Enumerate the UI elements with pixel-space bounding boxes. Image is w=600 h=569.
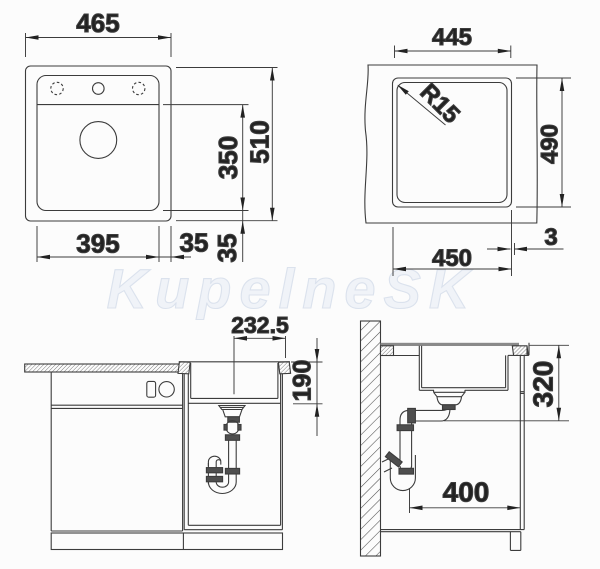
svg-text:490: 490 bbox=[537, 124, 564, 164]
svg-text:35: 35 bbox=[180, 228, 209, 258]
svg-text:350: 350 bbox=[213, 136, 243, 179]
svg-text:232.5: 232.5 bbox=[231, 312, 289, 338]
svg-text:465: 465 bbox=[76, 8, 119, 38]
svg-text:445: 445 bbox=[432, 24, 472, 51]
svg-text:510: 510 bbox=[245, 120, 275, 163]
svg-text:400: 400 bbox=[443, 477, 490, 508]
svg-text:190: 190 bbox=[289, 360, 317, 402]
svg-text:R15: R15 bbox=[415, 79, 465, 129]
svg-text:395: 395 bbox=[76, 229, 119, 259]
svg-text:320: 320 bbox=[528, 361, 559, 408]
svg-text:35: 35 bbox=[212, 234, 242, 263]
svg-text:3: 3 bbox=[544, 224, 557, 251]
svg-text:450: 450 bbox=[432, 245, 472, 272]
svg-text:KupelneSK: KupelneSK bbox=[107, 257, 478, 320]
